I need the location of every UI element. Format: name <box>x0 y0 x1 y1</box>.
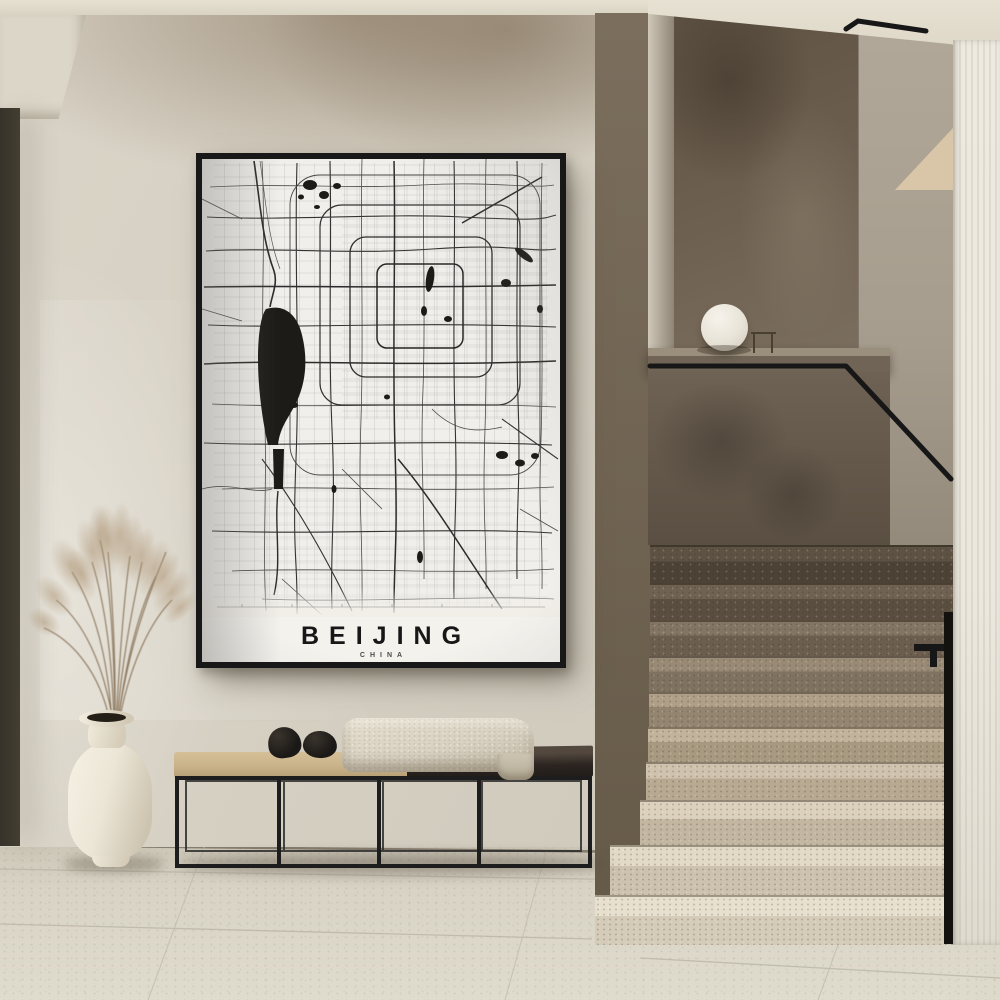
interior-scene: BEIJING CHINA <box>0 0 1000 1000</box>
stair-handrail <box>650 366 951 479</box>
stair-newel-post <box>944 612 953 944</box>
vase-opening <box>87 713 126 722</box>
bench-frame <box>175 776 592 868</box>
throw-blanket-flap <box>497 754 534 780</box>
pampas-grass <box>0 0 260 760</box>
upper-handrail <box>846 21 926 31</box>
ceramic-vase <box>68 742 152 860</box>
vase-foot <box>92 856 130 867</box>
small-stand <box>751 333 776 353</box>
